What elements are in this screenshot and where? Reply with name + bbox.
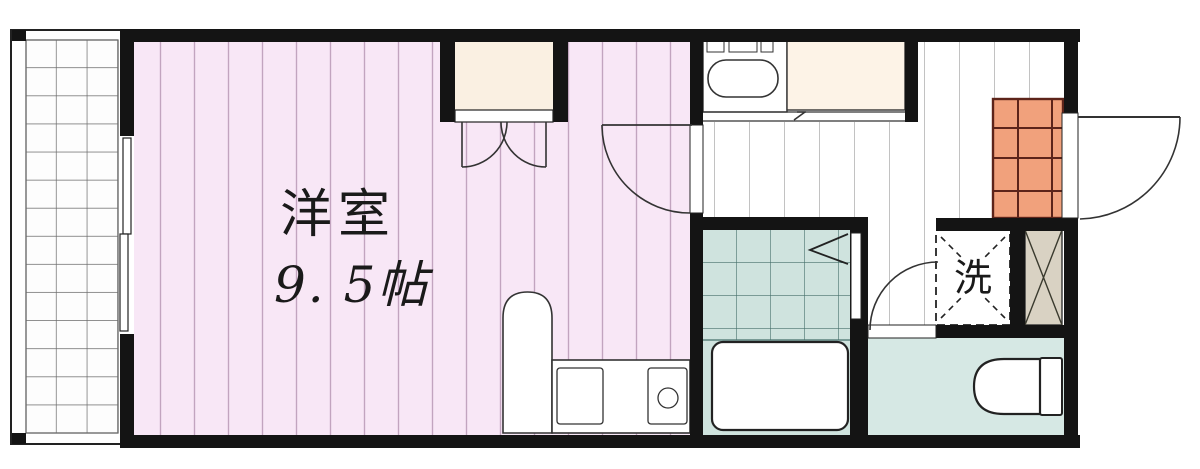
bath-door-panel: [851, 233, 861, 319]
room-name-label: 洋室: [280, 185, 396, 245]
hallway-floor: [703, 122, 918, 217]
floor-plan-drawing: 洗: [0, 0, 1200, 469]
front-door: [1062, 113, 1180, 219]
floor-plan: 洗: [0, 0, 1200, 469]
stove-burner: [658, 388, 678, 408]
closet-interior: [455, 42, 553, 110]
front-door-arc: [1080, 117, 1180, 219]
closet-track: [455, 110, 553, 122]
washer-pan: 洗: [936, 230, 1010, 325]
balcony: [11, 30, 125, 444]
shoe-storage: [1025, 230, 1062, 325]
entrance-genkan-tile: [993, 99, 1063, 218]
toilet-bowl: [974, 359, 1040, 414]
washroom-vestibule-floor: [868, 217, 936, 325]
kitchenette-sink: [557, 368, 603, 424]
bathtub: [712, 342, 848, 430]
counter-edge-mark: [794, 112, 806, 120]
washer-label: 洗: [954, 256, 992, 300]
water-heater-unit: [503, 292, 552, 433]
kitchen-sink: [708, 60, 778, 97]
counter-top: [787, 38, 905, 110]
toilet: [974, 358, 1062, 415]
kitchen-counter: [703, 38, 905, 121]
room-size-label: 9. 5帖: [274, 256, 433, 314]
balcony-window: [120, 136, 134, 334]
